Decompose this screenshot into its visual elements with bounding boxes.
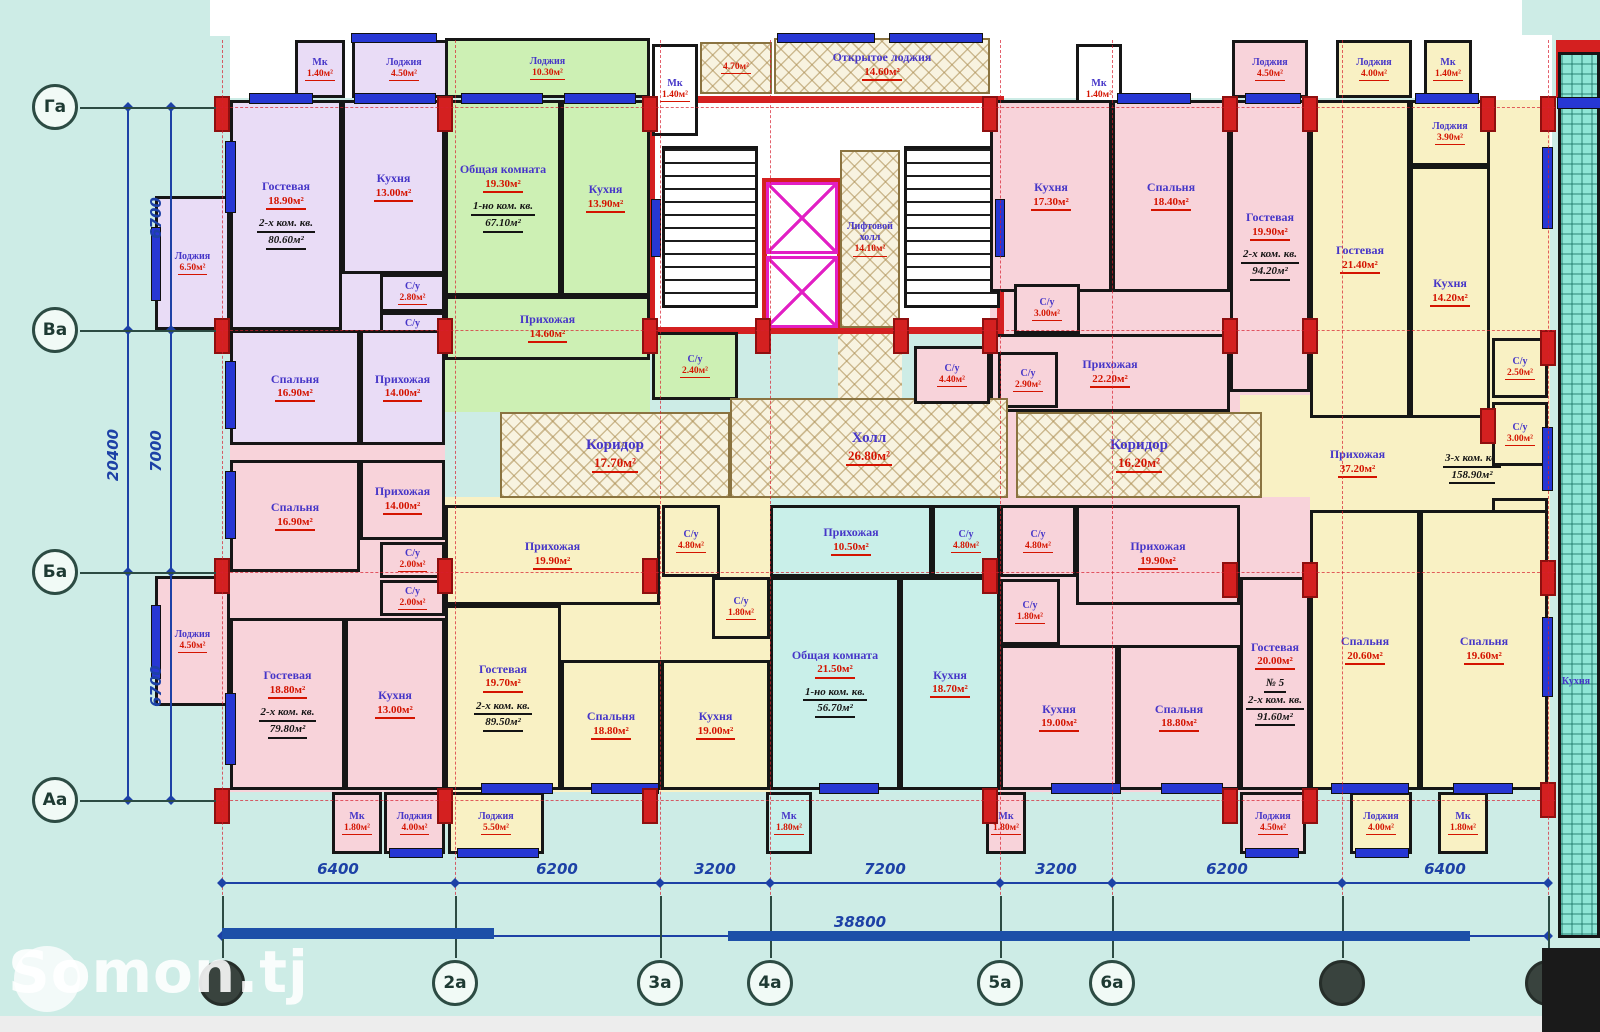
room-prihozhaya-1050: Прихожая10.50м²: [770, 505, 932, 577]
room-area: 19.00м²: [1039, 717, 1079, 732]
room-label: Лоджия: [1252, 57, 1287, 68]
room-area: 4.50м²: [389, 69, 419, 81]
room-area: 4.80м²: [1023, 541, 1053, 553]
room-kuhnya-top-left: Кухня13.00м²: [342, 100, 445, 274]
dimension-label: 6400: [1424, 860, 1466, 878]
dimension-label: 6200: [1206, 860, 1248, 878]
structural-column: [1222, 96, 1238, 132]
room-area: 19.60м²: [1464, 650, 1504, 665]
room-area: 19.70м²: [483, 677, 523, 692]
room-area: 1.80м²: [1448, 823, 1478, 835]
room-area: 1.80м²: [726, 608, 756, 620]
room-label: С/у: [405, 281, 420, 292]
room-area: 16.20м²: [1116, 455, 1162, 473]
structural-column: [982, 318, 998, 354]
window-strip: [1558, 98, 1600, 108]
structural-column: [1480, 408, 1496, 444]
room-area: 17.70м²: [592, 455, 638, 473]
structural-column: [1222, 788, 1238, 824]
room-area: 20.00м²: [1255, 655, 1295, 670]
room-corridor-right: Коридор16.20м²: [1016, 412, 1262, 498]
apartment-total: 94.20м²: [1250, 265, 1290, 281]
room-su-180-pink: С/у1.80м²: [1000, 579, 1060, 645]
room-area: 4.00м²: [1366, 823, 1396, 835]
room-label: Прихожая: [1082, 358, 1137, 371]
dimension-label: 7200: [864, 860, 906, 878]
room-area: 4.80м²: [676, 541, 706, 553]
room-area: 2.50м²: [1505, 368, 1535, 380]
dimension-tick: [450, 878, 460, 888]
room-area: 19.30м²: [483, 178, 523, 193]
room-su-200-b: С/у2.00м²: [380, 580, 445, 616]
room-loggia-pink-top: Лоджия4.50м²: [1232, 40, 1308, 98]
room-area: 4.00м²: [1359, 69, 1389, 81]
room-area: 14.20м²: [1430, 292, 1470, 307]
room-su-300-pink: С/у3.00м²: [1014, 284, 1080, 334]
bubble-leader: [1000, 896, 1002, 958]
room-label: Гостевая: [1246, 211, 1294, 224]
dimension-tick: [217, 878, 227, 888]
room-area: 1.40м²: [1433, 69, 1463, 81]
watermark-text: Somon.tj: [8, 938, 309, 1006]
room-lift-1: [766, 182, 838, 254]
room-label: Спальня: [587, 710, 635, 723]
room-spalnya-pink-bot: Спальня16.90м²: [230, 460, 360, 572]
apartment-total: 2-х ком. кв.: [1246, 694, 1304, 710]
room-area: 4.50м²: [1258, 823, 1288, 835]
room-label: Мк: [1440, 57, 1455, 68]
room-label: Прихожая: [520, 313, 575, 326]
structural-column: [982, 788, 998, 824]
room-label: Спальня: [1341, 635, 1389, 648]
apartment-total: 67.10м²: [483, 217, 523, 233]
room-label: Гостевая: [1251, 641, 1299, 654]
apartment-total: 80.60м²: [266, 234, 306, 250]
room-kuhnya-pink-top: Кухня17.30м²: [990, 100, 1112, 292]
window-strip: [1246, 94, 1300, 103]
room-label: Спальня: [1460, 635, 1508, 648]
room-gostevaya-top-left: Гостевая18.90м²2-х ком. кв.80.60м²: [230, 100, 342, 330]
room-obshchaya-green: Общая комната19.30м²1-но ком. кв.67.10м²: [445, 100, 561, 296]
apartment-total: 91.60м²: [1255, 711, 1295, 727]
room-label: С/у: [945, 363, 960, 374]
room-label: Прихожая: [1130, 540, 1185, 553]
structural-column: [1302, 96, 1318, 132]
room-kuhnya-1900-pink: Кухня19.00м²: [1000, 645, 1118, 790]
room-label: С/у: [405, 318, 420, 329]
black-square: [1542, 948, 1600, 1032]
room-mk-stair-left: Мк1.40м²: [652, 44, 698, 136]
room-area: 14.00м²: [383, 387, 423, 402]
bubble-leader: [455, 896, 457, 958]
room-area: 1.40м²: [305, 69, 335, 81]
axis-line-vertical: [1112, 40, 1113, 940]
room-label: Кухня: [1433, 277, 1467, 290]
room-su-240: С/у2.40м²: [652, 332, 738, 400]
room-label: С/у: [405, 586, 420, 597]
window-strip: [352, 34, 436, 42]
room-area: 5.50м²: [481, 823, 511, 835]
room-label: Гостевая: [263, 669, 311, 682]
room-loggia-green-top: Лоджия10.30м²: [445, 38, 650, 98]
bottom-strip: [0, 1016, 1600, 1032]
room-room-470: 4.70м²: [700, 42, 772, 94]
room-area: 1.40м²: [660, 90, 690, 102]
room-label: Гостевая: [479, 663, 527, 676]
room-mk-180-left: Мк1.80м²: [332, 792, 382, 854]
room-label: С/у: [959, 529, 974, 540]
room-area: 13.90м²: [586, 198, 626, 213]
bubble-leader: [660, 896, 662, 958]
room-area: 19.90м²: [533, 555, 573, 570]
room-label: С/у: [405, 548, 420, 559]
room-stair-left: [662, 146, 758, 308]
dimension-label: 3200: [1035, 860, 1077, 878]
dimension-label: 3200: [694, 860, 736, 878]
dimension-tick: [995, 878, 1005, 888]
room-area: 13.00м²: [375, 704, 415, 719]
room-loggia-top-left: Лоджия4.50м²: [352, 40, 456, 98]
room-label: Кухня: [1562, 676, 1590, 687]
room-mk-yellow-top: Мк1.40м²: [1424, 40, 1472, 98]
axis-line-vertical: [1342, 40, 1343, 940]
structural-column: [437, 96, 453, 132]
dimension-tick: [1337, 878, 1347, 888]
room-open-loggia: Открытое лоджия14.60м²: [774, 38, 990, 94]
window-strip: [226, 362, 235, 428]
room-loggia-400-left: Лоджия4.00м²: [384, 792, 445, 854]
bubble-leader: [1342, 896, 1344, 958]
room-label: Мк: [349, 811, 364, 822]
dimension-label: 6700: [147, 665, 165, 707]
room-label: Кухня: [589, 183, 623, 196]
apartment-total: 89.50м²: [483, 716, 523, 732]
room-label: Лоджия: [175, 629, 210, 640]
dimension-line-left: [170, 107, 172, 800]
room-loggia-390: Лоджия3.90м²: [1410, 100, 1490, 166]
room-area: 4.50м²: [1255, 69, 1285, 81]
room-teal-kuhnya-label: Кухня: [1552, 652, 1600, 712]
room-area: 14.60м²: [862, 66, 902, 81]
room-su-440: С/у4.40м²: [914, 346, 990, 404]
room-area: 17.30м²: [1031, 196, 1071, 211]
room-hall: Холл26.80м²: [730, 398, 1008, 498]
room-area: 18.90м²: [266, 195, 306, 210]
room-area: 14.10м²: [853, 244, 888, 256]
room-area: 10.50м²: [831, 541, 871, 556]
window-strip: [1454, 784, 1512, 793]
room-area: 18.80м²: [1159, 717, 1199, 732]
room-area: 4.40м²: [937, 375, 967, 387]
room-teal-strip: [1558, 52, 1600, 938]
bubble-leader: [1112, 896, 1114, 958]
room-label: С/у: [734, 596, 749, 607]
room-label: Коридор: [586, 437, 644, 454]
structural-column: [1302, 562, 1318, 598]
room-area: 2.00м²: [398, 560, 428, 572]
window-strip: [1246, 849, 1298, 857]
room-label: С/у: [1513, 422, 1528, 433]
apartment-total: № 5: [1264, 677, 1286, 693]
room-area: 3.00м²: [1032, 309, 1062, 321]
axis-line-horizontal: [140, 800, 1555, 801]
room-area: 3.90м²: [1435, 133, 1465, 145]
room-prihozhaya-purple: Прихожая14.00м²: [360, 330, 445, 445]
window-strip: [1052, 784, 1120, 793]
room-area: 22.20м²: [1090, 373, 1130, 388]
axis-bubble-bottom: 3а: [637, 960, 683, 1006]
structural-column: [1480, 96, 1496, 132]
room-label: Лоджия: [1363, 811, 1398, 822]
room-label: Лоджия: [397, 811, 432, 822]
room-gostevaya-yellow-top: Гостевая21.40м²: [1310, 100, 1410, 418]
room-loggia-400-bot: Лоджия4.00м²: [1350, 792, 1412, 854]
room-label: Мк: [781, 811, 796, 822]
room-prihozhaya-yellow-bot: Прихожая19.90м²: [445, 505, 660, 605]
room-area: 4.70м²: [721, 62, 751, 74]
room-label: Кухня: [1034, 181, 1068, 194]
window-strip: [1332, 784, 1408, 793]
room-label: Лоджия: [530, 56, 565, 67]
apartment-total: 56.70м²: [815, 702, 855, 718]
axis-line-vertical: [222, 40, 223, 940]
room-label: С/у: [1513, 356, 1528, 367]
room-area: 1.80м²: [1015, 612, 1045, 624]
axis-bubble-left: Ва: [32, 307, 78, 353]
axis-bubble-bottom: 6а: [1089, 960, 1135, 1006]
room-spalnya-2060: Спальня20.60м²: [1310, 510, 1420, 790]
room-area: 14.00м²: [383, 500, 423, 515]
room-lift-2: [766, 256, 838, 328]
room-area: 2.80м²: [398, 293, 428, 305]
room-label: С/у: [1040, 297, 1055, 308]
structural-column: [1302, 788, 1318, 824]
room-label: Спальня: [271, 373, 319, 386]
room-label: Прихожая: [375, 485, 430, 498]
axis-line-vertical: [1548, 40, 1549, 940]
room-area: 16.90м²: [275, 516, 315, 531]
room-label: Холл: [852, 430, 887, 447]
axis-bubble-left: Га: [32, 84, 78, 130]
room-label: Лоджия: [1432, 121, 1467, 132]
bubble-leader: [80, 572, 216, 574]
room-su-480-pink: С/у4.80м²: [1000, 505, 1076, 577]
room-area: 4.80м²: [951, 541, 981, 553]
room-spalnya-pink-top: Спальня18.40м²: [1112, 100, 1230, 292]
room-area: 1.80м²: [991, 823, 1021, 835]
room-label: Лоджия: [175, 251, 210, 262]
axis-line-vertical: [455, 40, 456, 940]
room-area: 3.00м²: [1505, 434, 1535, 446]
dimension-tick: [765, 878, 775, 888]
window-strip: [565, 94, 635, 103]
dimension-total-label: 38800: [834, 913, 886, 931]
room-label: Общая комната: [792, 649, 878, 662]
room-area: 18.80м²: [591, 725, 631, 740]
room-area: 13.00м²: [374, 187, 414, 202]
room-loggia-yellow-top: Лоджия4.00м²: [1336, 40, 1412, 98]
room-area: 19.90м²: [1250, 226, 1290, 241]
axis-bubble-bottom: 4а: [747, 960, 793, 1006]
structural-column: [642, 788, 658, 824]
room-label: Прихожая: [525, 540, 580, 553]
room-spalnya-1880-yellow: Спальня18.80м²: [561, 660, 661, 790]
dimension-label: 6700: [147, 197, 165, 239]
room-label: Лоджия: [1356, 57, 1391, 68]
window-strip: [226, 694, 235, 764]
room-loggia-450-bot: Лоджия4.50м²: [1240, 792, 1306, 854]
room-area: 2.90м²: [1013, 380, 1043, 392]
room-label: Спальня: [1155, 703, 1203, 716]
window-strip: [820, 784, 878, 793]
room-gostevaya-1970: Гостевая19.70м²2-х ком. кв.89.50м²: [445, 605, 561, 790]
room-mk-180-cyan: Мк1.80м²: [766, 792, 812, 854]
room-label: Мк: [1455, 811, 1470, 822]
window-strip: [390, 849, 442, 857]
axis-bubble-left: Аа: [32, 777, 78, 823]
window-strip: [250, 94, 312, 103]
axis-line-horizontal: [140, 107, 1555, 108]
room-area: 26.80м²: [846, 448, 892, 466]
structural-column: [893, 318, 909, 354]
room-label: Прихожая: [1330, 448, 1385, 461]
room-area: 21.50м²: [815, 663, 855, 678]
room-label: Кухня: [378, 689, 412, 702]
room-label: Коридор: [1110, 437, 1168, 454]
apartment-total: 2-х ком. кв.: [474, 700, 532, 716]
room-area: 19.90м²: [1138, 555, 1178, 570]
room-area: 37.20м²: [1338, 463, 1378, 478]
room-label: С/у: [1021, 368, 1036, 379]
structural-column: [437, 318, 453, 354]
room-mk-180-yellow-bot: Мк1.80м²: [1438, 792, 1488, 854]
structural-column: [1222, 562, 1238, 598]
room-label: С/у: [684, 529, 699, 540]
room-area: 21.40м²: [1340, 259, 1380, 274]
structural-column: [437, 788, 453, 824]
window-strip: [652, 200, 660, 256]
room-area: 10.30м²: [530, 68, 565, 80]
room-su-280: С/у2.80м²: [380, 274, 445, 312]
room-gostevaya-pink-top: Гостевая19.90м²2-х ком. кв.94.20м²: [1230, 100, 1310, 392]
window-strip: [226, 142, 235, 212]
room-area: 20.60м²: [1345, 650, 1385, 665]
room-spalnya-1960: Спальня19.60м²: [1420, 510, 1548, 790]
dimension-line-left-total: [127, 107, 129, 800]
window-strip: [778, 34, 874, 42]
floor-plan-sheet: Мк1.40м²Лоджия4.50м²Лоджия10.30м²Мк1.40м…: [0, 0, 1600, 1032]
structural-column: [1222, 318, 1238, 354]
dimension-tick: [1543, 878, 1553, 888]
room-label: Кухня: [699, 710, 733, 723]
room-label: Кухня: [377, 172, 411, 185]
window-strip: [1416, 94, 1478, 103]
room-obshchaya-cyan: Общая комната21.50м²1-но ком. кв.56.70м²: [770, 577, 900, 790]
dimension-total-label: 20400: [104, 429, 122, 481]
room-area: 6.50м²: [178, 263, 208, 275]
structural-column: [642, 96, 658, 132]
room-loggia-left-lower: Лоджия4.50м²: [155, 576, 230, 706]
dimension-tick: [1107, 878, 1117, 888]
room-prihozhaya-green: Прихожая14.60м²: [445, 296, 650, 360]
room-area: 1.80м²: [342, 823, 372, 835]
window-strip: [462, 94, 542, 103]
room-mk-top-left: Мк1.40м²: [295, 40, 345, 98]
window-strip: [482, 784, 552, 793]
window-strip: [458, 849, 538, 857]
window-strip: [226, 472, 235, 538]
apartment-total: 79.80м²: [268, 723, 308, 739]
room-loggia-left-upper: Лоджия6.50м²: [155, 196, 230, 330]
structural-column: [642, 318, 658, 354]
room-label: Лоджия: [478, 811, 513, 822]
axis-bubble-bottom: 5а: [977, 960, 1023, 1006]
axis-bubble-bottom: [1319, 960, 1365, 1006]
window-strip: [1356, 849, 1408, 857]
axis-bubble-bottom: 2а: [432, 960, 478, 1006]
room-label: Прихожая: [375, 373, 430, 386]
window-strip: [355, 94, 435, 103]
room-area: 19.00м²: [696, 725, 736, 740]
structural-column: [437, 558, 453, 594]
room-label: С/у: [1031, 529, 1046, 540]
room-label: Лифтовой холл: [842, 221, 898, 243]
room-kuhnya-green: Кухня13.90м²: [561, 100, 650, 296]
dimension-label: 7000: [147, 430, 165, 472]
structural-column: [982, 558, 998, 594]
axis-line-horizontal: [140, 330, 1555, 331]
room-label: Общая комната: [460, 163, 546, 176]
room-kuhnya-pink-bot: Кухня13.00м²: [345, 618, 445, 790]
room-prihozhaya-pink-bot: Прихожая14.00м²: [360, 460, 445, 540]
apartment-total: 2-х ком. кв.: [259, 706, 317, 722]
room-label: Гостевая: [1336, 244, 1384, 257]
room-area: 18.40м²: [1151, 196, 1191, 211]
apartment-total: 1-но ком. кв.: [471, 200, 535, 216]
room-label: Мк: [667, 78, 682, 89]
window-strip: [1118, 94, 1190, 103]
room-area: 4.00м²: [400, 823, 430, 835]
room-label: С/у: [688, 354, 703, 365]
room-kuhnya-1420: Кухня14.20м²: [1410, 166, 1490, 418]
axis-bubble-left: Ба: [32, 549, 78, 595]
room-corridor-left: Коридор17.70м²: [500, 412, 730, 498]
room-su-480-yellow: С/у4.80м²: [662, 505, 720, 577]
bubble-leader: [80, 107, 216, 109]
dimension-label: 6400: [317, 860, 359, 878]
room-kuhnya-1900-yellow: Кухня19.00м²: [661, 660, 770, 790]
apartment-total: 1-но ком. кв.: [803, 686, 867, 702]
dimension-line-bottom: [222, 882, 1548, 884]
axis-line-vertical: [770, 40, 771, 940]
room-label: Мк: [1091, 78, 1106, 89]
apartment-total: 158.90м²: [1449, 469, 1494, 485]
apartment-total: 2-х ком. кв.: [1241, 248, 1299, 264]
room-spalnya-purple: Спальня16.90м²: [230, 330, 360, 445]
room-label: Лоджия: [1255, 811, 1290, 822]
structural-column: [982, 96, 998, 132]
overlay-bar: [728, 931, 1470, 941]
bubble-leader: [770, 896, 772, 958]
room-gostevaya-pink-bot: Гостевая18.80м²2-х ком. кв.79.80м²: [230, 618, 345, 790]
structural-column: [1302, 318, 1318, 354]
room-kuhnya-1870: Кухня18.70м²: [900, 577, 1000, 790]
structural-column: [755, 318, 771, 354]
room-label: Кухня: [933, 669, 967, 682]
room-lift-hall: Лифтовой холл14.10м²: [840, 150, 900, 328]
room-label: Прихожая: [823, 526, 878, 539]
room-label: Спальня: [1147, 181, 1195, 194]
